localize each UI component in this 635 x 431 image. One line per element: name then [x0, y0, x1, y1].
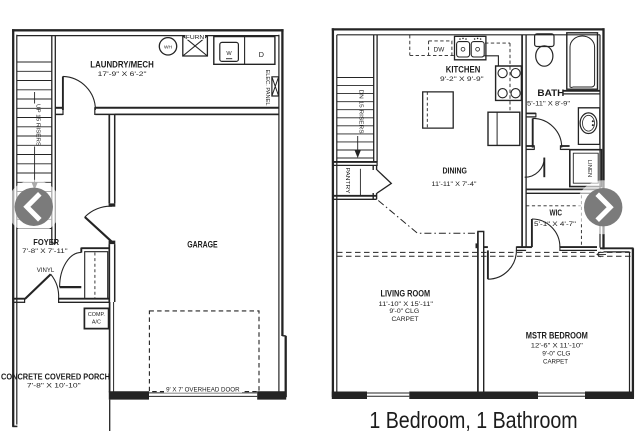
svg-text:9'-0" CLG: 9'-0" CLG — [542, 350, 570, 357]
svg-text:11'-11" X 7'-4": 11'-11" X 7'-4" — [432, 181, 478, 188]
svg-text:CONCRETE COVERED PORCH: CONCRETE COVERED PORCH — [1, 372, 110, 382]
svg-text:ELEC. PANEL: ELEC. PANEL — [264, 70, 270, 106]
svg-text:FURN: FURN — [186, 35, 205, 41]
svg-text:BATH: BATH — [537, 88, 564, 98]
svg-text:W: W — [226, 51, 232, 57]
svg-text:A/C: A/C — [92, 320, 101, 326]
svg-text:UP 15 RISERS: UP 15 RISERS — [34, 104, 40, 146]
svg-text:7'-8" X 7'-11": 7'-8" X 7'-11" — [22, 248, 68, 255]
svg-text:KITCHEN: KITCHEN — [446, 64, 481, 74]
svg-text:7'-8" X 10'-10": 7'-8" X 10'-10" — [27, 382, 82, 389]
svg-text:D: D — [259, 50, 264, 59]
svg-text:DN 15 RISERS: DN 15 RISERS — [358, 90, 364, 134]
svg-text:GARAGE: GARAGE — [187, 240, 218, 250]
svg-text:CARPET: CARPET — [543, 358, 568, 365]
svg-text:FOYER: FOYER — [33, 237, 59, 247]
svg-text:5'-11" X 8'-9": 5'-11" X 8'-9" — [527, 100, 571, 107]
svg-text:COMP.: COMP. — [88, 312, 105, 318]
svg-text:DINING: DINING — [443, 166, 467, 176]
svg-text:WIC: WIC — [550, 209, 563, 218]
svg-text:LIVING ROOM: LIVING ROOM — [381, 288, 431, 298]
svg-text:5'-1" X 4'-7": 5'-1" X 4'-7" — [534, 221, 577, 228]
svg-text:MSTR BEDROOM: MSTR BEDROOM — [526, 330, 588, 340]
svg-text:9' X 7' OVERHEAD DOOR: 9' X 7' OVERHEAD DOOR — [166, 387, 240, 394]
svg-text:11'-10" X 15'-11": 11'-10" X 15'-11" — [379, 301, 434, 308]
svg-text:LINEN: LINEN — [586, 160, 592, 178]
svg-text:PANTRY: PANTRY — [344, 168, 350, 194]
svg-text:17'-9" X 6'-2": 17'-9" X 6'-2" — [98, 71, 148, 78]
svg-text:9'-0" CLG: 9'-0" CLG — [389, 308, 419, 315]
svg-text:VINYL: VINYL — [37, 268, 55, 274]
svg-text:DW: DW — [434, 47, 446, 54]
svg-text:LAUNDRY/MECH: LAUNDRY/MECH — [90, 59, 154, 69]
svg-text:CARPET: CARPET — [392, 316, 419, 323]
svg-text:WH: WH — [164, 44, 173, 50]
svg-text:9'-2" X 9'-9": 9'-2" X 9'-9" — [440, 76, 484, 83]
svg-text:12'-6" X 11'-10": 12'-6" X 11'-10" — [531, 343, 584, 350]
svg-text:1 Bedroom, 1 Bathroom: 1 Bedroom, 1 Bathroom — [369, 407, 577, 431]
